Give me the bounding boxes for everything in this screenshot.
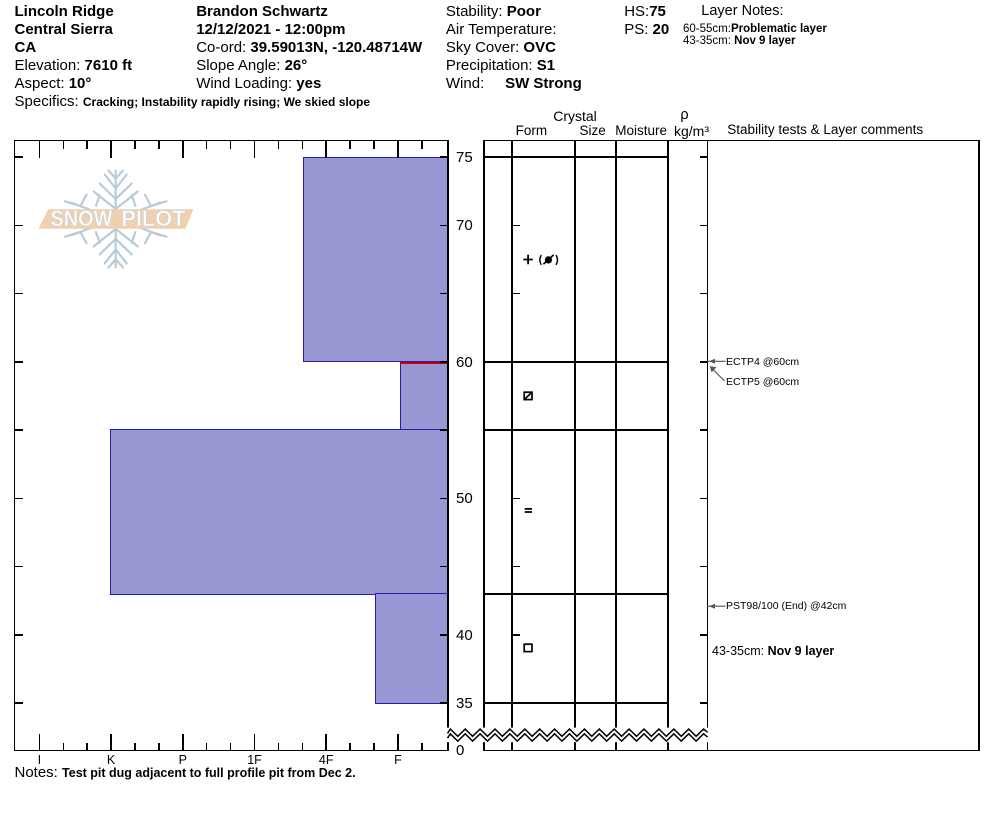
svg-text:PILOT: PILOT xyxy=(121,206,186,231)
svg-text:SNOW: SNOW xyxy=(51,206,113,231)
